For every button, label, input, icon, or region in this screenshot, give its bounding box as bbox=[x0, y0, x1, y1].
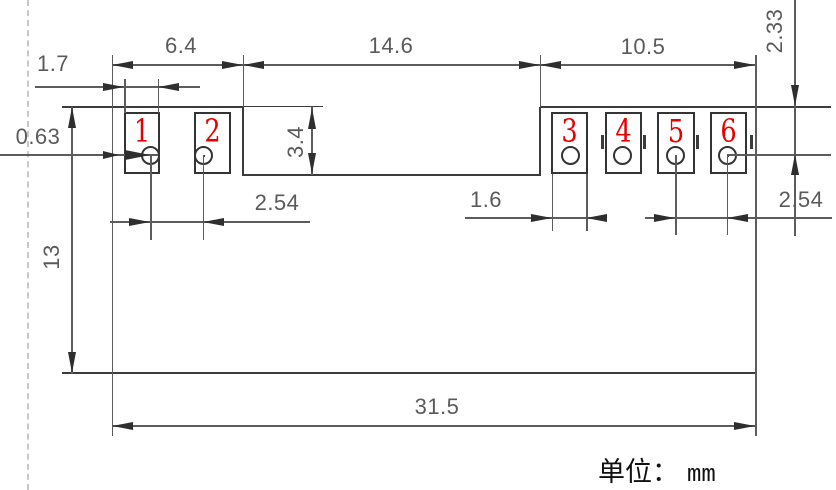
dim-2-54-right-arrow-left bbox=[654, 214, 675, 222]
dim-31-5-arrow-left bbox=[112, 422, 133, 430]
extension-pin6-center bbox=[727, 155, 729, 235]
dim-31-5-line bbox=[112, 425, 755, 427]
extension-left-edge bbox=[112, 55, 114, 436]
body-top-edge-right bbox=[540, 106, 831, 108]
extension-pin5-center bbox=[675, 155, 677, 235]
dim-2-33-label: 2.33 bbox=[762, 9, 788, 54]
extension-pad1-left bbox=[124, 79, 126, 113]
dim-31-5-arrow-right bbox=[734, 422, 755, 430]
dashed-margin-line bbox=[27, 0, 29, 490]
pad-1: 1 bbox=[124, 112, 160, 174]
dim-6-4-label: 6.4 bbox=[165, 33, 197, 59]
dim-3-4-arrow-up bbox=[308, 108, 316, 129]
extension-pin6-centerline bbox=[727, 154, 831, 156]
dim-3-4-arrow-down bbox=[308, 153, 316, 174]
dim-13-line bbox=[71, 107, 73, 374]
dim-1-6-arrow-left bbox=[531, 214, 552, 222]
lead-mark-4 bbox=[750, 135, 753, 149]
dim-1-7-arrow-left bbox=[103, 83, 124, 91]
pad-1-number: 1 bbox=[129, 114, 155, 148]
dim-2-54-left-arrow-left bbox=[129, 218, 150, 226]
dim-31-5-label: 31.5 bbox=[415, 394, 460, 420]
dim-13-label: 13 bbox=[39, 244, 65, 269]
dim-14-6-arrow-left bbox=[243, 61, 264, 69]
dim-1-6-arrow-right bbox=[586, 214, 607, 222]
dim-3-4-label: 3.4 bbox=[283, 126, 309, 158]
dim-2-54-right-arrow-right bbox=[727, 214, 748, 222]
pad-2-number: 2 bbox=[199, 114, 225, 148]
lead-mark-3 bbox=[696, 135, 699, 149]
extension-pad3-left bbox=[552, 174, 554, 231]
pad-2: 2 bbox=[194, 112, 231, 174]
pad-3-hole bbox=[561, 146, 580, 165]
body-bottom-edge bbox=[62, 372, 756, 374]
dim-13-arrow-down bbox=[68, 352, 76, 373]
engineering-drawing: 1 2 3 4 5 6 6.4 14.6 bbox=[0, 0, 836, 490]
dim-2-33-arrow-down bbox=[791, 85, 799, 106]
extension-pin1-center bbox=[150, 155, 152, 240]
dim-0-63-arrow-large bbox=[125, 150, 150, 160]
dim-6-4-arrow-right bbox=[222, 61, 243, 69]
dim-0-63-arrow-small bbox=[103, 151, 119, 159]
dim-2-54-left-arrow-right bbox=[203, 218, 224, 226]
extension-right-edge bbox=[755, 55, 757, 436]
dim-0-63-label: 0.63 bbox=[16, 124, 61, 150]
dim-10-5-arrow-right bbox=[734, 61, 755, 69]
dim-1-6-label: 1.6 bbox=[470, 187, 502, 213]
extension-pad3-right bbox=[586, 174, 588, 231]
pad-4-number: 4 bbox=[610, 114, 636, 148]
dim-2-54-left-label: 2.54 bbox=[255, 190, 300, 216]
dim-2-33-arrow-up bbox=[791, 154, 799, 175]
dim-14-6-line bbox=[243, 64, 540, 66]
pad-3-number: 3 bbox=[556, 114, 582, 148]
pad-4-hole bbox=[613, 146, 632, 165]
dim-14-6-label: 14.6 bbox=[369, 33, 414, 59]
dim-1-7-label: 1.7 bbox=[37, 51, 69, 77]
unit-label: 单位： bbox=[598, 450, 679, 489]
dim-13-arrow-up bbox=[68, 107, 76, 128]
dim-1-7-arrow-right bbox=[158, 83, 179, 91]
dim-6-4-arrow-left bbox=[112, 61, 133, 69]
pad-5-number: 5 bbox=[662, 114, 689, 148]
unit-value: mm bbox=[687, 462, 716, 489]
lead-mark-1 bbox=[601, 135, 604, 149]
dim-10-5-label: 10.5 bbox=[621, 34, 666, 60]
dim-10-5-line bbox=[540, 64, 755, 66]
unit-note: 单位： mm bbox=[598, 450, 716, 489]
extension-pin2-center bbox=[203, 155, 205, 240]
dim-2-33-line bbox=[794, 0, 796, 236]
dim-14-6-arrow-right bbox=[519, 61, 540, 69]
dim-2-54-right-label: 2.54 bbox=[779, 187, 824, 213]
dim-10-5-arrow-left bbox=[540, 61, 561, 69]
lead-mark-2 bbox=[643, 135, 646, 149]
pad-6-number: 6 bbox=[715, 114, 741, 148]
